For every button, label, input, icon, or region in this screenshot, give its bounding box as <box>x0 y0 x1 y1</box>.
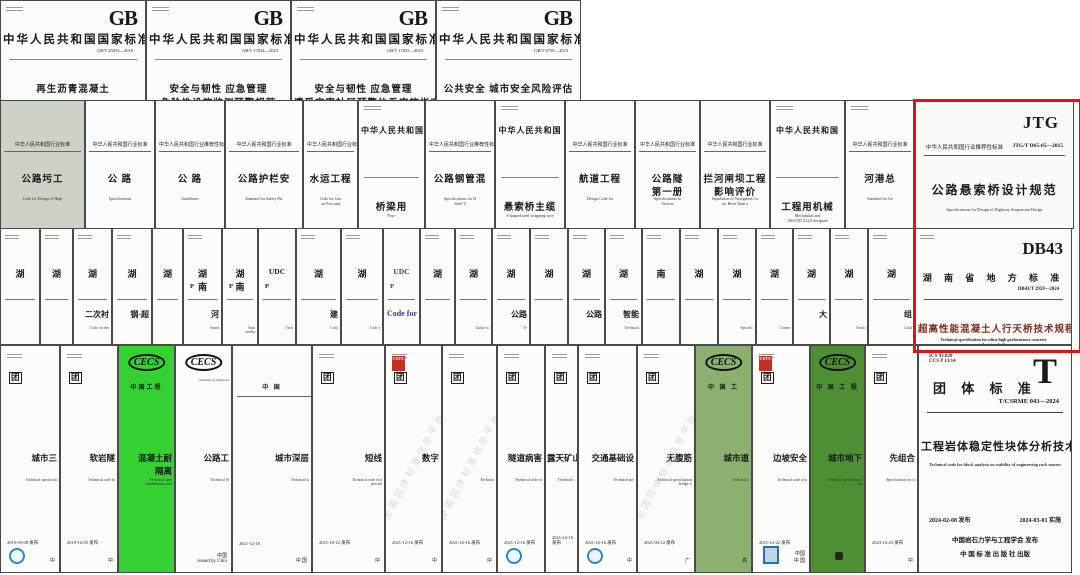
tuan-badge-icon: 团 <box>554 372 567 384</box>
standard-cover: 中华人民共和国行业推荐性标准公路钢管混Specifications for D … <box>425 100 495 229</box>
divider <box>497 299 525 300</box>
standard-title: 智能 <box>607 309 639 320</box>
standard-title-en: Guidelines <box>158 196 222 201</box>
standard-title: 河 <box>185 309 219 320</box>
standard-category-header: 中华人民共和国行业标准 <box>704 141 766 152</box>
cover-region-label: 湖 <box>569 267 604 280</box>
standard-title: 先组合 <box>867 452 915 464</box>
standard-title: 城市深层 <box>234 452 309 464</box>
standard-title-en: Mechanical and (ISO/CD 2122) designed <box>773 213 842 223</box>
standard-title: 公路工 <box>177 452 229 464</box>
standard-title: 城市道 <box>697 452 749 464</box>
cecs-logo-icon: CECS <box>819 354 857 371</box>
standard-cover: 湖 <box>420 228 455 345</box>
standard-cover: 湖Comm <box>756 228 793 345</box>
standard-cover: 湖钢-超 <box>112 228 152 345</box>
standard-category-header: 中华人民共和国 <box>773 125 842 139</box>
tuan-badge-icon: 团 <box>451 372 464 384</box>
standard-category-header: 中华人民共和国行业标准 <box>89 141 151 152</box>
divider <box>573 299 600 300</box>
ics-code-marks <box>301 235 315 241</box>
gb-logo-icon: GB <box>109 6 137 31</box>
standard-title-en: Cons <box>298 326 338 330</box>
ics-code-marks <box>346 235 360 241</box>
standard-cover: 湖南PStan mediu <box>222 228 258 345</box>
standard-title: 边坡安全 <box>754 452 807 464</box>
tuan-badge-icon: 团 <box>874 372 887 384</box>
standard-title-en: Post- <box>361 213 422 218</box>
standard-category-header: 中华人民共和国行业推荐性标准 <box>159 141 221 152</box>
standard-category-header: 中华人民共和国行业标准 <box>229 141 299 152</box>
standard-category-header: 团 体 标 准 <box>933 378 1019 397</box>
standard-cover: 湖组Guid <box>868 228 915 345</box>
standard-title: 公路隧 <box>638 171 697 185</box>
cover-region-label: 南 <box>643 267 679 280</box>
standard-category-header: 中华人民共和国行业标准 <box>849 141 911 152</box>
ics-code-marks <box>6 7 23 13</box>
standard-title-en: S-shaped steel wrapping wire <box>498 213 562 218</box>
standard-category-header: 中华人民共和国国家标准 <box>149 31 288 47</box>
divider <box>685 299 713 300</box>
standard-title: 公 路 <box>88 171 152 185</box>
standard-title: 公共安全 城市安全风险评估 <box>439 81 578 95</box>
standard-cover: 团软岩隧Technical code fo2019-12-05 发布中 <box>60 345 118 573</box>
standard-number: T/CSRME 043—2024 <box>999 398 1060 405</box>
standard-title-en: Code for Geo on Port and <box>306 196 355 206</box>
standard-title: 安全与韧性 应急管理 <box>149 81 288 95</box>
standard-title-en: Technical <box>607 326 639 330</box>
standard-cover: 湖 <box>152 228 183 345</box>
ics-code-marks <box>501 106 518 112</box>
divider <box>237 396 311 397</box>
standard-cover: 团短线Technical code of p precast2021-10-12… <box>312 345 385 573</box>
divider <box>5 299 35 300</box>
ics-code-marks <box>685 235 699 241</box>
divider <box>535 299 563 300</box>
standard-title-en: Specifications fo Section <box>638 196 697 206</box>
organization-name: 中 国 <box>233 382 311 391</box>
publish-date: 2021-12-16 <box>239 541 260 546</box>
standard-title-en: Technical specification for ultra-high p… <box>920 337 1067 345</box>
cover-region-label: 湖 <box>757 267 792 280</box>
publish-date: 2021-12-16 发布 <box>392 540 423 546</box>
ics-code-marks <box>585 354 600 360</box>
ics-code-marks <box>573 235 587 241</box>
standard-title-en: Technical s <box>698 478 749 482</box>
gb-logo-icon: GB <box>399 6 427 31</box>
cover-region-label: 湖 <box>606 267 641 280</box>
standard-title-en: Standard for Safety Per <box>228 196 300 201</box>
publish-date: 2021-04-12 发布 <box>644 540 675 546</box>
cover-region-label: 湖 <box>297 267 340 280</box>
standard-cover: 湖公路 <box>568 228 605 345</box>
standard-cover: 团无腹筋Technical specification bridge w2021… <box>637 345 695 573</box>
standard-title-en: Tech <box>260 326 293 330</box>
ics-code-marks <box>776 106 793 112</box>
standard-title: 公路护栏安 <box>228 171 300 185</box>
standard-title-en: Technical code of p precast <box>315 478 382 486</box>
standard-category-header: 中华人民共和国行业推荐性标准 <box>429 141 491 152</box>
standard-title: 桥梁用 <box>361 199 422 213</box>
standard-title-en: Design Code for <box>568 196 632 201</box>
cover-region-label: 湖 <box>421 267 454 280</box>
standard-title-en: Specification for st <box>868 478 915 482</box>
publisher-emblem-icon <box>763 546 779 564</box>
standard-title: 交通基础设 <box>580 452 634 464</box>
publisher-emblem-icon <box>835 552 843 560</box>
cover-region-label: 湖 <box>456 267 491 280</box>
standard-title: 城市地下 <box>812 452 862 464</box>
publish-date: 2023-12-25 发布 <box>872 540 903 546</box>
cover-region-label: UDC <box>259 267 295 276</box>
gb-logo-icon: GB <box>544 6 572 31</box>
ics-code-marks <box>920 235 934 241</box>
standard-cover: 中华人民共和国桥梁用Post- <box>358 100 425 229</box>
divider <box>425 299 450 300</box>
standard-category-header: 中华人民共和国行业标准 <box>4 141 81 152</box>
divider <box>263 299 291 300</box>
standard-cover: 中华人民共和国行业标准公 路Specifications <box>85 100 155 229</box>
cover-region-label: 湖 <box>153 267 182 280</box>
standard-title: 城市三 <box>2 452 57 464</box>
standard-title-en: Technical code fo <box>63 478 115 482</box>
standard-title-en: Technical specificati <box>3 478 57 482</box>
standard-title: 拦河闸坝工程 <box>703 171 767 185</box>
standard-cover: ICS 93.020 CCS P 13/14T团 体 标 准T/CSRME 04… <box>918 345 1072 573</box>
divider <box>301 299 336 300</box>
standard-cover: UDCPCode for <box>383 228 420 345</box>
standard-title-en: Technical St <box>178 478 229 482</box>
divider <box>776 177 839 178</box>
divider <box>300 59 427 60</box>
standard-number: JTG/T D65-05—2015 <box>1013 143 1063 149</box>
cover-class-label: P <box>265 283 269 290</box>
divider <box>761 299 788 300</box>
cover-region-label: 湖 <box>493 267 529 280</box>
standard-category-header: 中华人民共和国 <box>361 125 422 139</box>
cover-region-label: UDC <box>384 267 419 276</box>
ics-code-marks <box>7 354 22 360</box>
implement-date: 2024-03-01 实施 <box>1020 515 1062 524</box>
standard-cover: CECS中 国 工 程城市地下Technical specification w… <box>810 345 865 573</box>
publisher: 中 国 <box>235 557 307 564</box>
standard-cover: 湖南P河Stand <box>183 228 222 345</box>
divider <box>835 299 863 300</box>
ics-code-marks <box>497 235 511 241</box>
standard-title: 二次衬 <box>75 309 109 320</box>
standard-title: 数字 <box>387 452 439 464</box>
ics-code-marks <box>152 7 169 13</box>
standard-cover: CECSStandard of China As公路工Technical St中… <box>175 345 232 573</box>
publisher: 中 <box>868 557 913 564</box>
divider <box>45 299 68 300</box>
publisher-emblem-icon <box>587 548 603 564</box>
organization-subtitle: Standard of China As <box>178 378 229 382</box>
standard-title-en: Guid <box>870 326 912 330</box>
standard-category-header: 湖 南 省 地 方 标 准 <box>920 271 1067 284</box>
standard-cover: 中华人民共和国行业标准拦河闸坝工程影响评价Stipulation of Navi… <box>700 100 770 229</box>
organization-name: 中 国 工 程 <box>811 382 864 391</box>
divider <box>78 299 107 300</box>
standard-title-en: Code for des <box>75 326 109 330</box>
divider <box>610 299 637 300</box>
standard-cover: 湖二次衬Code for des <box>73 228 112 345</box>
divider <box>927 412 1063 413</box>
tuan-badge-icon: 团 <box>69 372 82 384</box>
standard-title: 航道工程 <box>568 171 632 185</box>
standard-number: DB43/T 2959—2024 <box>1018 287 1059 292</box>
cecs-logo-icon: CECS <box>705 354 743 371</box>
ics-code-marks <box>78 235 92 241</box>
standard-cover: 中华人民共和国工程用机械Mechanical and (ISO/CD 2122)… <box>770 100 845 229</box>
association-seal-icon: CSTC <box>392 356 405 371</box>
standard-cover: 湖Specific <box>718 228 756 345</box>
standard-cover: 南 <box>642 228 680 345</box>
standard-cover: 湖 <box>40 228 73 345</box>
ics-code-marks <box>535 235 549 241</box>
standard-category-header: 中华人民共和国行业标准 <box>569 141 631 152</box>
standard-cover: 中华人民共和国行业标准航道工程Design Code for <box>565 100 635 229</box>
standard-title-en: Stan mediu <box>224 326 255 334</box>
divider <box>117 299 147 300</box>
standard-title: 公路圬工 <box>3 171 82 185</box>
cecs-logo-icon: CECS <box>185 354 223 371</box>
publish-date: 2021-12-16 发布 <box>585 540 616 546</box>
standard-title-en: Specific <box>720 326 753 330</box>
publisher: 中 <box>388 557 437 564</box>
standard-cover: 团城市三Technical specificati2019-03-08 发布中 <box>0 345 60 573</box>
watermark: 全国团体标准信息平台 <box>637 394 695 538</box>
standard-category-header: 中华人民共和国行业推荐性标准 <box>926 143 1003 154</box>
publisher-emblem-icon <box>506 548 522 564</box>
standard-cover: 中华人民共和国行业推荐性标准公 路Guidelines <box>155 100 225 229</box>
standard-cover: 团Technica2021-12-16 发布中全国团体标准信息平台 <box>442 345 497 573</box>
publisher: 中 <box>315 557 380 564</box>
standard-number: GB/T 17034—2023 <box>242 48 278 53</box>
standard-title: 软岩隧 <box>62 452 115 464</box>
standard-title: 建 <box>298 309 338 320</box>
ics-code-marks <box>442 7 459 13</box>
standard-category-header: 中华人民共和国国家标准 <box>439 31 578 47</box>
cover-region-label: 湖 <box>869 267 914 280</box>
publish-date: 2021-10-12 发布 <box>319 540 350 546</box>
standard-cover: 湖建Cons <box>296 228 341 345</box>
standard-title: 公路 <box>570 309 602 320</box>
divider <box>460 299 487 300</box>
ics-code-marks <box>835 235 849 241</box>
cover-region-label: 湖 <box>794 267 829 280</box>
divider <box>723 299 751 300</box>
organization-name: 中国工程 <box>119 382 174 391</box>
standard-title: 混凝土耐 <box>120 452 172 464</box>
publish-date: 2024-02-08 发布 <box>929 515 971 524</box>
ics-code-marks <box>644 354 659 360</box>
standard-title-en: Specifications for Design of Highway Sus… <box>918 207 1071 212</box>
divider <box>9 59 137 60</box>
standard-title: Code for <box>385 309 417 318</box>
ics-code-marks <box>425 235 439 241</box>
standard-cover: 湖 <box>0 228 40 345</box>
standard-cover: GB中华人民共和国国家标准GB/T 25033—2010再生沥青混凝土 <box>0 0 146 101</box>
standard-title: 公路钢管混 <box>428 171 492 185</box>
publish-date: 2019-12-05 发布 <box>67 540 98 546</box>
standard-title-en: Specifications <box>88 196 152 201</box>
ics-code-marks <box>647 235 661 241</box>
jtg-logo-icon: JTG <box>1023 113 1059 133</box>
standard-title: 悬索桥主缆 <box>498 199 562 213</box>
standard-title-en: Technical spec rehabilitation and <box>121 478 172 486</box>
standard-title-en: Guide fo <box>457 326 489 330</box>
standard-title-en: Technical c <box>548 478 575 482</box>
standard-title-en: Technica <box>445 478 494 482</box>
standard-number: GB/T 25033—2010 <box>97 48 133 53</box>
standard-cover: CSTC团边坡安全Technical code of p2021-12-22 发… <box>752 345 810 573</box>
standard-cover: CSTC团数字2021-12-16 发布中全国团体标准信息平台 <box>385 345 442 573</box>
divider <box>157 299 178 300</box>
standard-category-header: 中华人民共和国国家标准 <box>294 31 433 47</box>
standard-category-header: 中华人民共和国国家标准 <box>3 31 143 47</box>
ics-code-marks <box>873 235 887 241</box>
standard-title-en: Stipulation of Navigation Co for River D… <box>703 196 767 206</box>
standard-cover: 团隧道病害Technical code of2021-12-16 发布 <box>497 345 545 573</box>
standard-cover: 中华人民共和国行业标准河港总Standard for Ge <box>845 100 915 229</box>
publish-date: 2021-12-16 发布 <box>552 535 577 546</box>
standard-cover: 湖大 <box>793 228 830 345</box>
standard-cover: CECS中国工程混凝土耐隔离Technical spec rehabilitat… <box>118 345 175 573</box>
ics-code-marks <box>761 235 775 241</box>
standard-cover: 湖Techn <box>830 228 868 345</box>
tuan-badge-icon: 团 <box>321 372 334 384</box>
db43-logo-icon: DB43 <box>1022 239 1063 259</box>
ics-code-marks <box>872 354 887 360</box>
standard-number: GB/T 6750—2023 <box>534 48 568 53</box>
cecs-logo-icon: CECS <box>128 354 166 371</box>
standard-number: GB/T 17035—2023 <box>387 48 423 53</box>
standard-title: 隔离 <box>120 465 172 477</box>
standard-title: 工程岩体稳定性块体分析技术规范 <box>921 438 1069 454</box>
standard-category-header: 中华人民共和国行业标准 <box>639 141 696 152</box>
standard-title: 组 <box>870 309 912 320</box>
ics-code-marks <box>297 7 314 13</box>
standard-category-header: 中华人民共和国 <box>498 125 562 139</box>
standard-cover: 中华人民共和国行业标准公路护栏安Standard for Safety Per <box>225 100 303 229</box>
standard-cover: 中 国城市深层Technical st2021-12-16中 国 <box>232 345 312 573</box>
standard-title-en: Technical st <box>235 478 309 482</box>
standard-title: 无腹筋 <box>639 452 692 464</box>
standard-title-en: Code for Design of High <box>3 196 82 201</box>
ics-code-marks <box>449 354 464 360</box>
publisher-emblem-icon <box>9 548 25 564</box>
standard-cover: 中华人民共和国行业标准水运工程Code for Geo on Port and <box>303 100 358 229</box>
tuan-badge-icon: 团 <box>587 372 600 384</box>
ics-code-marks <box>504 354 519 360</box>
standard-cover: CECS中 国 工城市道Technical s高 <box>695 345 752 573</box>
standard-cover: 湖 <box>530 228 568 345</box>
standard-title: 安全与韧性 应急管理 <box>294 81 433 95</box>
tuan-badge-icon: 团 <box>506 372 519 384</box>
gb-logo-icon: GB <box>254 6 282 31</box>
publisher: 中 <box>445 557 492 564</box>
standard-title: 大 <box>795 309 827 320</box>
cover-region-label: 湖 <box>342 267 382 280</box>
cover-region-label: 湖 <box>831 267 867 280</box>
divider <box>798 299 825 300</box>
watermark: 全国团体标准信息平台 <box>385 394 442 537</box>
ics-code-marks <box>798 235 812 241</box>
ics-code-marks <box>460 235 474 241</box>
standard-title-en: Technical spe <box>581 478 634 482</box>
ics-code-marks <box>723 235 737 241</box>
standard-cover: 湖智能Technical <box>605 228 642 345</box>
divider <box>388 299 415 300</box>
standards-cover-collage: GB中华人民共和国国家标准GB/T 25033—2010再生沥青混凝土GB中华人… <box>0 0 1080 575</box>
standard-cover: GB中华人民共和国国家标准GB/T 17034—2023安全与韧性 应急管理危险… <box>146 0 291 101</box>
ics-code-marks <box>851 106 868 112</box>
standard-cover: UDCPTech <box>258 228 296 345</box>
standard-title: 公 路 <box>158 171 222 185</box>
divider <box>501 177 559 178</box>
tuan-badge-icon: 团 <box>9 372 22 384</box>
divider <box>227 299 253 300</box>
publisher: 高 <box>698 557 747 564</box>
standard-cover: 湖Code f <box>341 228 383 345</box>
standard-title-en: Stand <box>185 326 219 330</box>
standard-cover: GB中华人民共和国国家标准GB/T 6750—2023公共安全 城市安全风险评估 <box>436 0 581 101</box>
cover-region-label: 湖 <box>74 267 111 280</box>
divider <box>155 59 282 60</box>
publish-date: 2021-12-16 发布 <box>449 540 480 546</box>
ics-code-marks <box>319 354 334 360</box>
standard-title-en: Technical specification wit <box>813 478 862 486</box>
cover-region-label: 湖 <box>531 267 567 280</box>
cover-class-label: P <box>190 283 194 290</box>
cover-class-label: P <box>229 283 233 290</box>
divider <box>924 155 1065 156</box>
standard-cover: GB中华人民共和国国家标准GB/T 17035—2023安全与韧性 应急管理遭受… <box>291 0 436 101</box>
standard-title-en: Technical code for block analysis on sta… <box>923 462 1067 467</box>
watermark: 全国团体标准信息平台 <box>442 395 497 536</box>
standard-title: 超高性能混凝土人行天桥技术规程 <box>918 321 1069 335</box>
publish-date: 2021-12-16 发布 <box>504 540 535 546</box>
divider <box>924 299 1063 300</box>
publish-date: 2019-03-08 发布 <box>7 540 38 546</box>
standard-title-en: Techn <box>832 326 865 330</box>
tuan-badge-icon: 团 <box>394 372 407 384</box>
standard-cover: 中华人民共和国行业标准公路圬工Code for Design of High <box>0 100 85 229</box>
ics-code-marks <box>5 235 19 241</box>
ics-code: ICS 93.020 CCS P 13/14 <box>929 354 956 364</box>
divider <box>445 59 572 60</box>
divider <box>364 177 419 178</box>
standard-title: 河港总 <box>848 171 912 185</box>
ics-code-marks <box>364 106 381 112</box>
standard-title: 公路悬索桥设计规范 <box>918 181 1071 198</box>
standard-title: 露天矿山 <box>547 452 575 464</box>
standard-cover: 团交通基础设Technical spe2021-12-16 发布中 <box>578 345 637 573</box>
standard-cover: 团先组合Specification for st2023-12-25 发布中 <box>865 345 918 573</box>
standard-title-en: Standard for Ge <box>848 196 912 201</box>
ics-code-marks <box>117 235 131 241</box>
tuan-badge-icon: 团 <box>761 372 774 384</box>
standard-title-en: Code f <box>343 326 380 330</box>
divider <box>647 299 675 300</box>
cover-region-label: 湖 <box>113 267 151 280</box>
standard-title: 水运工程 <box>306 171 355 185</box>
organization-name: 中 国 工 <box>696 382 751 391</box>
standard-title: 公路 <box>494 309 527 320</box>
cover-class-label: P <box>390 283 394 290</box>
standard-cover: 团露天矿山Technical c2021-12-16 发布 <box>545 345 578 573</box>
